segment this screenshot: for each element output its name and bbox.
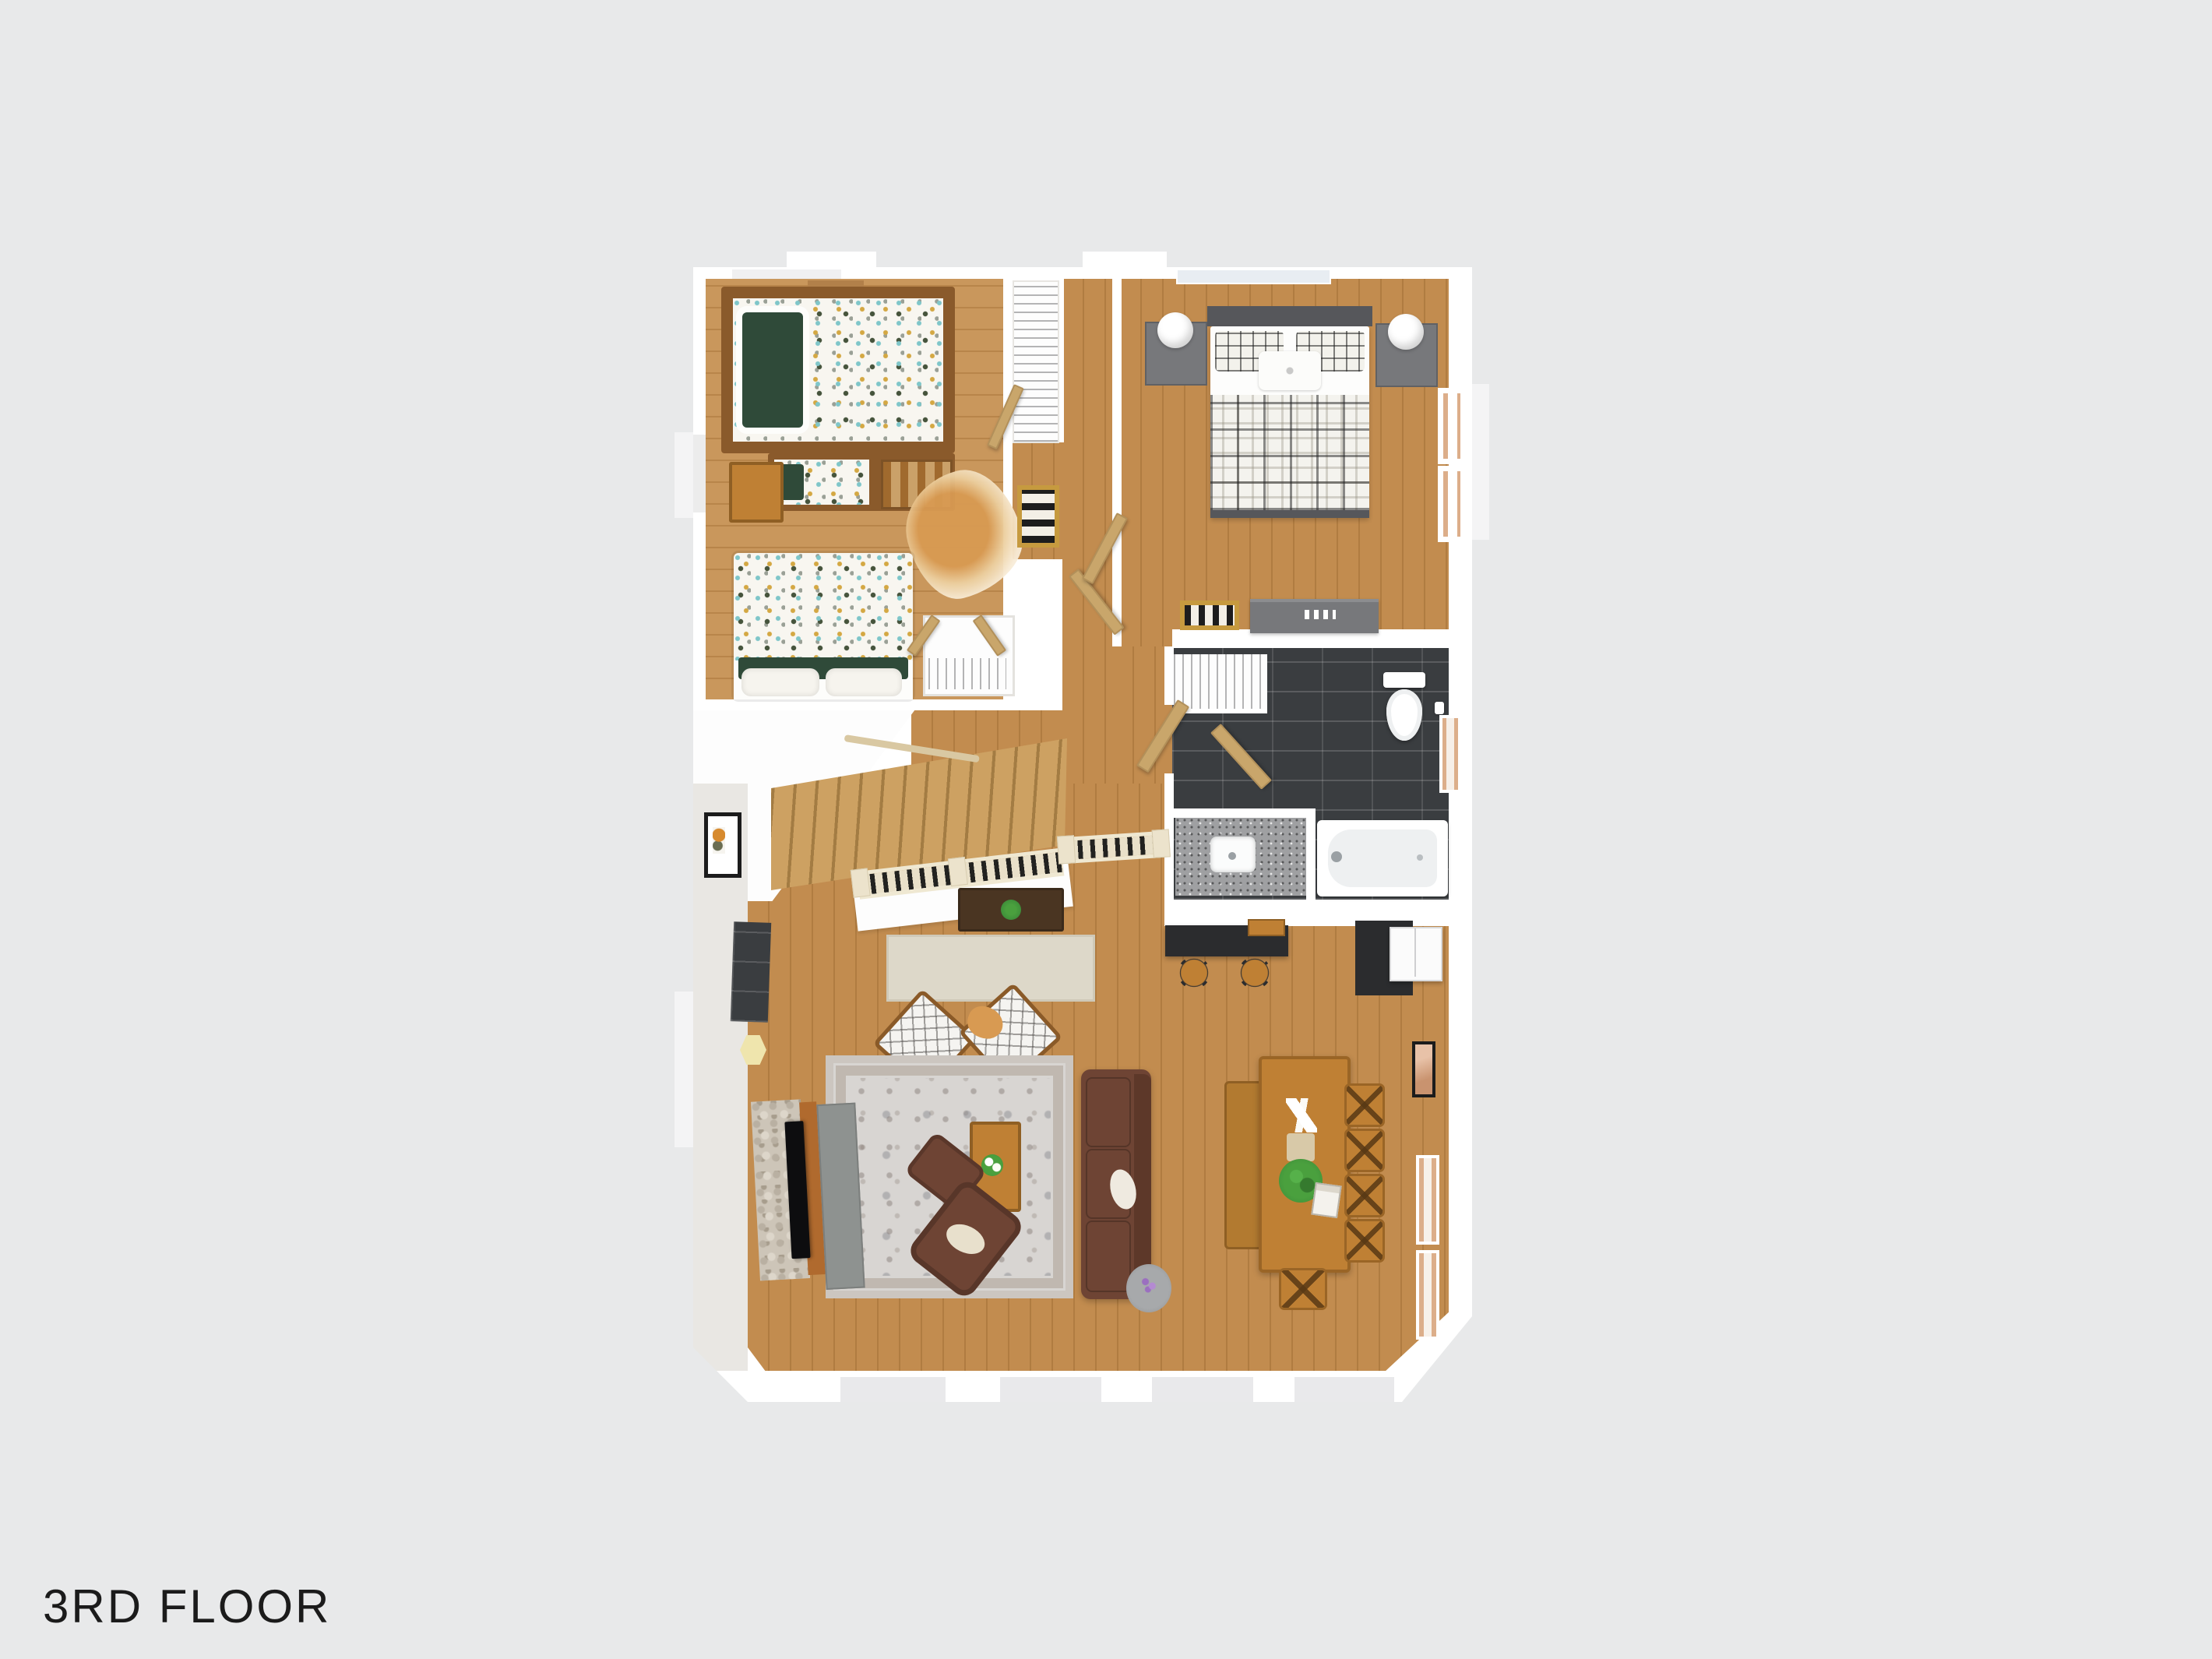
- fireplace-tv-wall: [751, 1090, 866, 1291]
- master-dresser: [1250, 599, 1379, 633]
- wall-art-left-image: [713, 827, 725, 854]
- side-table: [1126, 1264, 1171, 1312]
- bunk-lower-bedding: [774, 460, 869, 505]
- twin-bed: [734, 553, 913, 699]
- master-footboard: [1210, 510, 1369, 518]
- kids-closet-shelving: [928, 658, 1006, 689]
- toilet-tank: [1383, 672, 1425, 688]
- kitchenette-cabinet: [1390, 927, 1442, 981]
- floor-plan-3rd-floor: [693, 267, 1472, 1404]
- dining-books: [1311, 1182, 1342, 1218]
- left-window-kids: [693, 435, 706, 512]
- bathroom-window: [1439, 715, 1461, 793]
- sofa-backrest: [1134, 1074, 1151, 1294]
- dining-chair-3: [1344, 1174, 1385, 1217]
- coffee-table-flowers: [981, 1154, 1003, 1176]
- bathroom-window-trim: [1442, 718, 1458, 790]
- dining-chair-1: [1344, 1083, 1385, 1127]
- master-comforter: [1210, 395, 1369, 510]
- master-bed: [1210, 326, 1369, 518]
- linen-closet-shelving: [1174, 654, 1267, 713]
- dining-chair-2: [1344, 1129, 1385, 1172]
- bunk-bed-green-pillow: [742, 312, 803, 428]
- hallway-floor: [1062, 279, 1112, 784]
- dining-chair-4: [1344, 1219, 1385, 1263]
- master-top-window: [1176, 269, 1331, 284]
- master-headboard: [1207, 306, 1372, 326]
- vanity-faucet: [1228, 852, 1236, 860]
- twin-bed-pillow-2: [826, 668, 902, 696]
- entry-tile-patch: [731, 921, 771, 1023]
- master-right-window-2: [1438, 466, 1466, 542]
- master-right-window-2-trim: [1443, 471, 1460, 537]
- dining-napkins: [1286, 1098, 1317, 1132]
- sofa-cushion-1: [1086, 1077, 1131, 1147]
- side-table-flowers: [1140, 1277, 1157, 1294]
- desk-stool-1: [1178, 956, 1210, 989]
- window-sill-right-master: [1471, 384, 1489, 540]
- cabinet-door-divider: [1414, 928, 1416, 977]
- south-window-2: [997, 1374, 1104, 1405]
- window-sill-left-bedroom: [675, 432, 695, 518]
- luggage-rack-master: [1180, 601, 1239, 630]
- bathtub: [1317, 820, 1448, 896]
- twin-bed-pillow-1: [741, 668, 819, 696]
- wall-bath-west-upper: [1164, 646, 1174, 705]
- bathtub-drain: [1417, 854, 1423, 861]
- top-window-kids: [732, 269, 841, 279]
- vanity-counter: [1175, 818, 1306, 896]
- dining-window-1: [1416, 1155, 1439, 1245]
- floor-label: 3RD FLOOR: [43, 1580, 331, 1633]
- south-window-3: [1149, 1374, 1256, 1405]
- dining-placemat: [1287, 1133, 1315, 1161]
- dining-window-2-trim: [1419, 1253, 1436, 1337]
- south-window-4: [1291, 1374, 1397, 1405]
- dining-window-1-trim: [1419, 1158, 1436, 1242]
- newel-post-2: [948, 857, 968, 886]
- window-sill-left-living: [675, 992, 695, 1147]
- lamp-left: [1157, 312, 1193, 348]
- newel-post-4: [1152, 829, 1171, 858]
- desk-stool-2: [1238, 956, 1271, 989]
- south-window-1: [837, 1374, 949, 1405]
- hall-closet-shelving: [1013, 280, 1059, 443]
- wall-art-right: [1412, 1041, 1435, 1097]
- master-right-window-1: [1438, 388, 1466, 464]
- lamp-right: [1388, 314, 1424, 350]
- bunk-bed: [721, 287, 955, 453]
- wall-art-left: [704, 812, 741, 878]
- hall-shelf: [1248, 919, 1285, 936]
- recliner-pillow: [942, 1218, 990, 1259]
- dresser-decor: [1305, 610, 1336, 619]
- sofa-cushion-3: [1086, 1220, 1131, 1292]
- dining-table: [1259, 1056, 1351, 1273]
- wall-hall-master: [1112, 279, 1122, 646]
- dining-window-2: [1416, 1250, 1439, 1340]
- toilet-paper-holder: [1435, 702, 1444, 714]
- console-plant: [1001, 900, 1021, 920]
- master-pillow-elephant: [1259, 351, 1321, 390]
- kids-closet-door-2: [973, 615, 1007, 657]
- floor-plan-canvas: 3RD FLOOR: [0, 0, 2212, 1659]
- kids-closet: [923, 615, 1015, 696]
- dining-bench: [1224, 1081, 1263, 1249]
- dining-chair-end: [1279, 1268, 1327, 1310]
- newel-post-3: [1057, 835, 1076, 864]
- luggage-rack-hall: [1017, 485, 1059, 548]
- newel-post-1: [851, 868, 871, 897]
- kids-desk: [729, 462, 784, 523]
- wall-vanity-tub: [1306, 812, 1316, 900]
- runner-rug: [886, 935, 1095, 1002]
- master-right-window-1-trim: [1443, 393, 1460, 459]
- wall-vanity-north: [1174, 808, 1316, 818]
- bathtub-faucet: [1331, 851, 1342, 862]
- building-outline: [693, 267, 1472, 1404]
- console-table: [958, 888, 1064, 932]
